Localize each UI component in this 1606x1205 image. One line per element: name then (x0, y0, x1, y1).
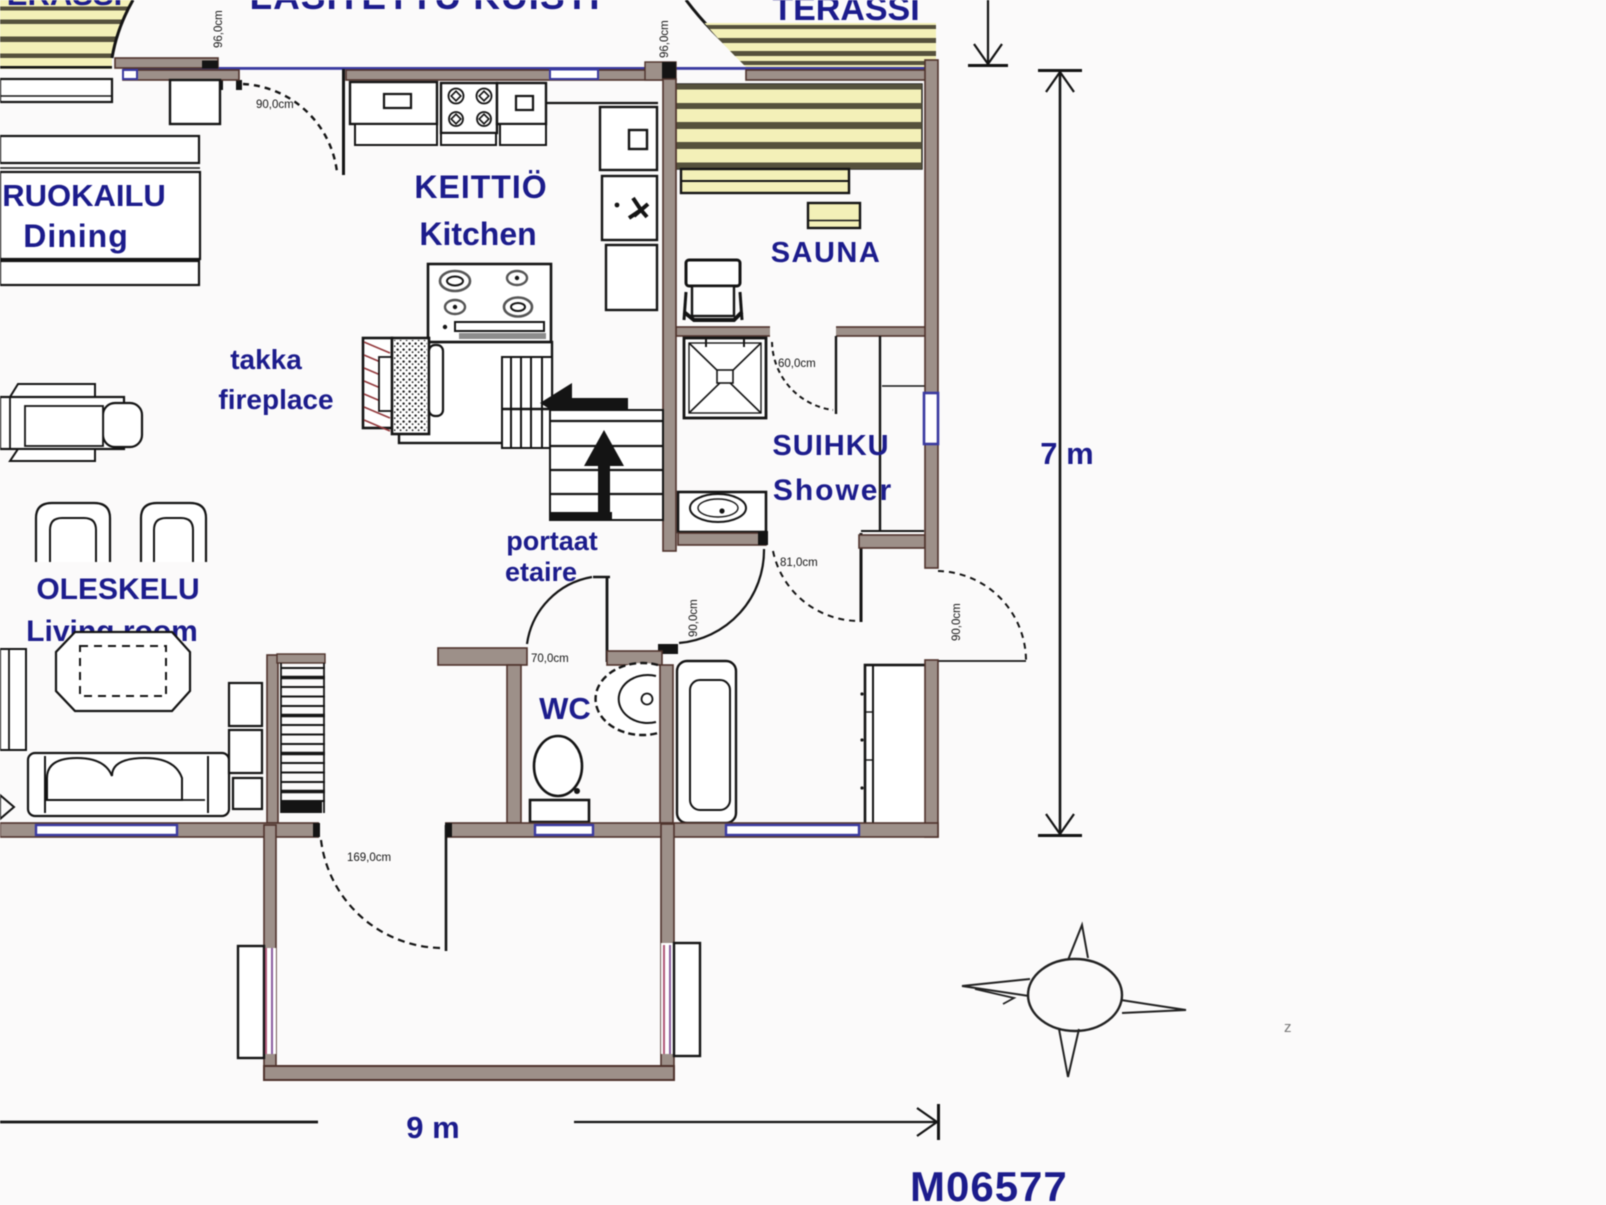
svg-text:SUIHKU: SUIHKU (772, 430, 889, 462)
svg-text:z: z (1284, 1019, 1292, 1036)
svg-text:169,0cm: 169,0cm (347, 852, 391, 864)
svg-text:KEITTIÖ: KEITTIÖ (414, 169, 547, 205)
svg-text:SAUNA: SAUNA (771, 237, 882, 269)
svg-text:RUOKAILU: RUOKAILU (2, 178, 166, 213)
svg-text:fireplace: fireplace (218, 384, 333, 415)
svg-text:Kitchen: Kitchen (419, 216, 536, 252)
svg-text:Shower: Shower (773, 474, 893, 507)
svg-text:TERASSI: TERASSI (0, 0, 122, 12)
svg-text:96,0cm: 96,0cm (659, 20, 671, 58)
svg-text:Dining: Dining (23, 218, 129, 254)
svg-text:takka: takka (230, 344, 302, 375)
svg-text:90,0cm: 90,0cm (688, 599, 700, 637)
svg-text:7 m: 7 m (1040, 436, 1093, 471)
svg-text:81,0cm: 81,0cm (780, 557, 818, 569)
svg-text:etaire: etaire (505, 557, 577, 587)
svg-text:LASITETTU KUISTI: LASITETTU KUISTI (249, 0, 600, 17)
svg-text:OLESKELU: OLESKELU (36, 573, 199, 606)
svg-text:portaat: portaat (506, 526, 598, 556)
svg-text:70,0cm: 70,0cm (531, 653, 569, 665)
svg-text:TERASSI: TERASSI (772, 0, 919, 28)
svg-text:90,0cm: 90,0cm (951, 603, 963, 641)
svg-text:M06577: M06577 (910, 1163, 1068, 1205)
svg-text:96,0cm: 96,0cm (213, 10, 225, 48)
svg-text:90,0cm: 90,0cm (256, 99, 294, 111)
svg-text:WC: WC (539, 691, 591, 726)
svg-text:9 m: 9 m (406, 1110, 459, 1145)
svg-text:60,0cm: 60,0cm (778, 358, 816, 370)
